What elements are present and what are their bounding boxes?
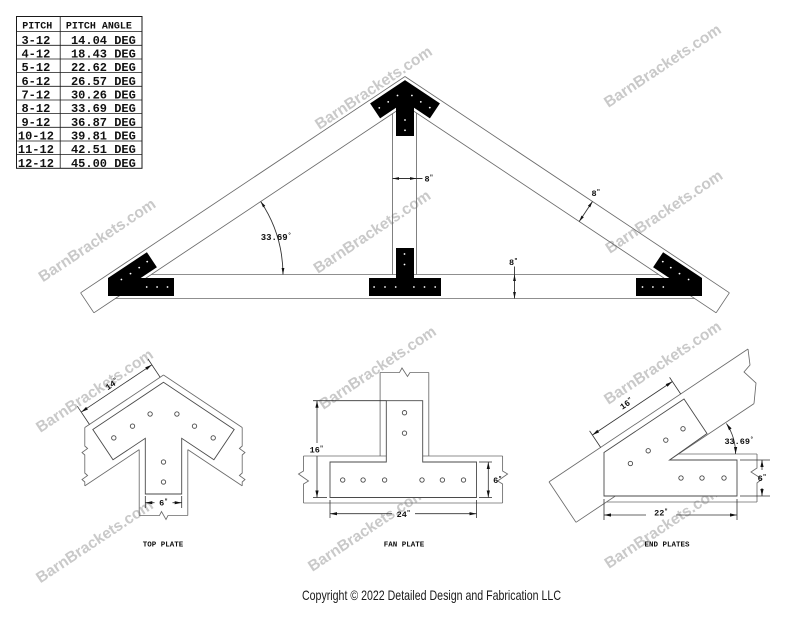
svg-text:30.26 DEG: 30.26 DEG [71, 89, 136, 103]
svg-text:Copyright © 2022 Detailed Desi: Copyright © 2022 Detailed Design and Fab… [302, 587, 561, 603]
svg-text:33.69 DEG: 33.69 DEG [71, 102, 136, 116]
svg-text:42.51 DEG: 42.51 DEG [71, 143, 136, 157]
svg-text:9-12: 9-12 [21, 116, 50, 130]
svg-text:36.87 DEG: 36.87 DEG [71, 116, 136, 130]
svg-text:11-12: 11-12 [18, 143, 54, 157]
svg-text:PITCH: PITCH [22, 22, 52, 33]
svg-text:14.04 DEG: 14.04 DEG [71, 34, 136, 48]
svg-text:3-12: 3-12 [21, 34, 50, 48]
svg-text:FAN PLATE: FAN PLATE [384, 542, 425, 550]
svg-text:PITCH ANGLE: PITCH ANGLE [66, 22, 132, 33]
svg-text:12-12: 12-12 [18, 157, 54, 171]
svg-text:18.43 DEG: 18.43 DEG [71, 48, 136, 62]
svg-text:TOP PLATE: TOP PLATE [143, 542, 184, 550]
svg-text:22.62 DEG: 22.62 DEG [71, 61, 136, 75]
svg-text:7-12: 7-12 [21, 89, 50, 103]
svg-text:33.69°: 33.69° [724, 436, 753, 447]
svg-text:39.81 DEG: 39.81 DEG [71, 130, 136, 144]
svg-text:45.00 DEG: 45.00 DEG [71, 157, 136, 171]
svg-text:33.69°: 33.69° [261, 232, 292, 243]
svg-text:10-12: 10-12 [18, 130, 54, 144]
svg-text:4-12: 4-12 [21, 48, 50, 62]
svg-text:END PLATES: END PLATES [644, 542, 690, 550]
svg-text:5-12: 5-12 [21, 61, 50, 75]
svg-text:6-12: 6-12 [21, 75, 50, 89]
svg-text:26.57 DEG: 26.57 DEG [71, 75, 136, 89]
svg-text:8-12: 8-12 [21, 102, 50, 116]
